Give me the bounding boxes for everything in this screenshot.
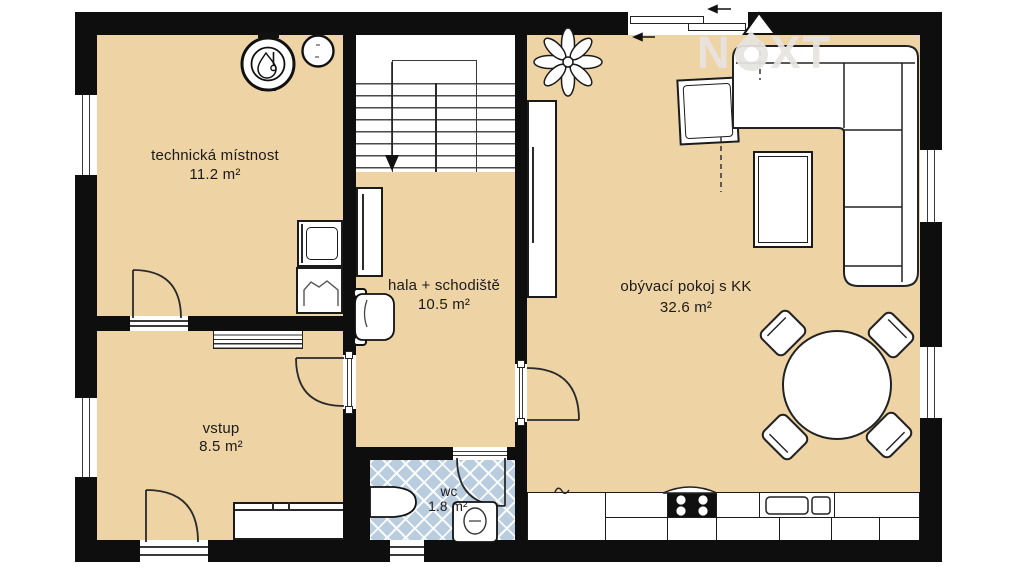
room-area-obyvaci: 32.6 m² — [660, 299, 712, 316]
kitchen-sink-icon — [759, 492, 836, 519]
wall-right — [920, 12, 942, 562]
window-icon — [920, 150, 942, 222]
door-leaf-in-wall — [343, 355, 356, 409]
entrance-door-threshold — [140, 540, 208, 562]
room-label-hala: hala + schodiště — [388, 277, 500, 294]
door-threshold — [453, 447, 507, 460]
door-jamb — [517, 360, 525, 368]
door-jamb — [345, 351, 353, 359]
door-threshold — [130, 316, 188, 331]
laundry-basket-icon — [296, 267, 343, 314]
kitchen-cabinet — [831, 517, 881, 541]
house-ring-icon — [735, 38, 768, 71]
square-armchair-cushion — [683, 83, 734, 139]
kitchen-cabinet — [779, 517, 833, 541]
floor-plan: technická místnost 11.2 m² hala + schodi… — [0, 0, 1024, 575]
next-watermark: N XT — [697, 27, 832, 79]
doormat-icon — [213, 329, 303, 349]
entry-cabinet-tick — [288, 502, 290, 510]
kitchen-counter-icon — [527, 492, 607, 541]
wall-hall-right — [515, 12, 527, 540]
room-area-vstup: 8.5 m² — [199, 438, 243, 455]
door-leaf-in-wall — [515, 364, 527, 422]
kitchen-cabinet — [716, 517, 781, 541]
wall-wc-left — [343, 447, 370, 540]
wardrobe-door-line — [362, 194, 364, 270]
room-area-technicka: 11.2 m² — [189, 166, 240, 183]
door-jamb — [517, 418, 525, 426]
door-jamb — [345, 406, 353, 414]
room-label-obyvaci: obývací pokoj s KK — [620, 278, 751, 295]
room-label-wc: wc — [441, 484, 458, 499]
washing-machine-drum — [306, 227, 338, 260]
stair-center-line — [435, 83, 437, 172]
watermark-text-xt: XT — [771, 27, 833, 79]
wardrobe-icon — [356, 187, 383, 277]
cooktop-icon — [667, 492, 718, 519]
kitchen-counter-icon — [716, 492, 761, 519]
room-label-technicka: technická místnost — [151, 147, 279, 164]
window-icon — [75, 398, 97, 477]
room-label-vstup: vstup — [203, 420, 240, 437]
washing-machine-door-line — [301, 224, 303, 263]
window-icon — [920, 347, 942, 418]
kitchen-counter-icon — [605, 492, 669, 519]
coffee-table-top — [758, 156, 808, 243]
shelf-cabinet-line — [532, 147, 534, 243]
kitchen-cabinet — [667, 517, 718, 541]
window-icon — [390, 540, 424, 562]
room-area-hala: 10.5 m² — [418, 296, 470, 313]
kitchen-counter-icon — [834, 492, 920, 519]
kitchen-cabinet — [879, 517, 920, 541]
watermark-text-n: N — [697, 27, 732, 79]
window-icon — [75, 95, 97, 175]
room-area-wc: 1.8 m² — [428, 499, 467, 514]
entry-cabinet-tick — [272, 502, 274, 510]
kitchen-cabinet — [605, 517, 669, 541]
